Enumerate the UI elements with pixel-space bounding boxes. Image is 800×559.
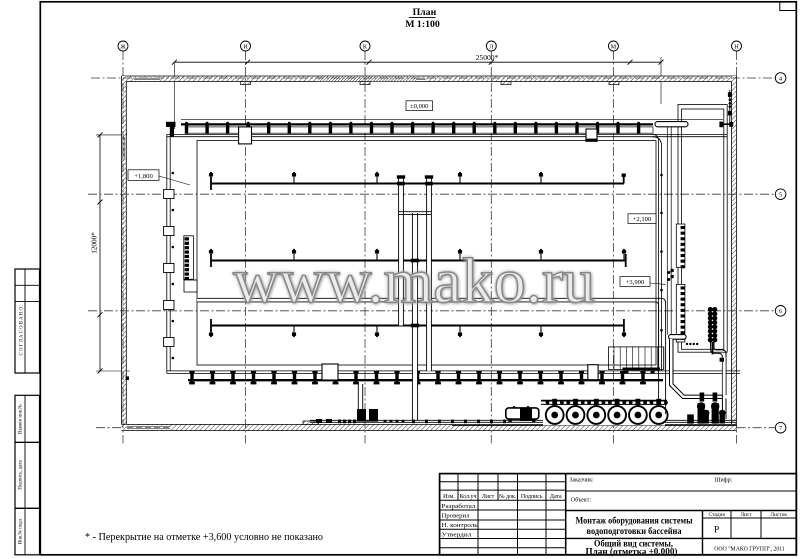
svg-text:К: К	[363, 43, 368, 50]
svg-text:4: 4	[779, 75, 782, 82]
svg-text:Ж: Ж	[120, 43, 126, 50]
svg-text:Подпись: Подпись	[521, 494, 543, 500]
svg-text:№ док.: № док.	[499, 494, 517, 500]
svg-text:Листов: Листов	[770, 512, 787, 518]
svg-text:С О Г Л А С О В А Н О :: С О Г Л А С О В А Н О :	[20, 305, 25, 356]
svg-text:±0,000: ±0,000	[410, 103, 429, 110]
svg-text:М: М	[611, 43, 617, 50]
svg-text:5: 5	[779, 192, 782, 199]
svg-text:Проверил: Проверил	[442, 513, 471, 520]
svg-text:Л: Л	[489, 43, 494, 50]
svg-text:6: 6	[779, 308, 782, 315]
svg-text:Заказчик:: Заказчик:	[570, 478, 595, 484]
svg-text:Взамен инв.№: Взамен инв.№	[18, 404, 24, 434]
svg-text:Стадия: Стадия	[708, 512, 725, 518]
svg-text:ООО "МАКО ГРУПП", 2011: ООО "МАКО ГРУПП", 2011	[714, 547, 785, 553]
svg-text:Изм.: Изм.	[443, 494, 455, 500]
svg-text:Дата: Дата	[550, 494, 562, 500]
svg-text:Утвердил: Утвердил	[442, 532, 473, 539]
svg-text:Лист: Лист	[740, 512, 752, 518]
svg-text:7: 7	[779, 425, 782, 432]
svg-text:25000*: 25000*	[476, 53, 499, 62]
svg-text:Подпись, дата: Подпись, дата	[19, 460, 24, 490]
svg-text:+2,100: +2,100	[633, 216, 652, 223]
svg-text:Н. контроль: Н. контроль	[442, 522, 478, 529]
svg-text:М 1:100: М 1:100	[405, 19, 440, 30]
svg-text:водоподготовки бассейна: водоподготовки бассейна	[587, 526, 682, 537]
svg-text:+1,800: +1,800	[134, 173, 153, 180]
svg-text:Разработал: Разработал	[442, 503, 477, 510]
svg-text:Объект:: Объект:	[571, 496, 591, 503]
svg-text:Р: Р	[714, 526, 719, 536]
svg-text:12000*: 12000*	[91, 232, 99, 254]
svg-text:+3,900: +3,900	[626, 279, 645, 286]
svg-text:Инв.№ подл.: Инв.№ подл.	[18, 518, 24, 545]
svg-text:Кол.уч: Кол.уч	[460, 494, 477, 500]
svg-text:Лист: Лист	[482, 494, 495, 500]
svg-text:План (отметка ±0,000): План (отметка ±0,000)	[586, 546, 678, 557]
svg-text:Н: Н	[734, 43, 739, 50]
svg-text:Шифр:: Шифр:	[715, 477, 733, 484]
svg-text:И: И	[243, 43, 248, 50]
svg-text:* - Перекрытие на отметке +3,6: * - Перекрытие на отметке +3,600 условно…	[85, 532, 323, 543]
svg-text:План: План	[413, 7, 437, 18]
